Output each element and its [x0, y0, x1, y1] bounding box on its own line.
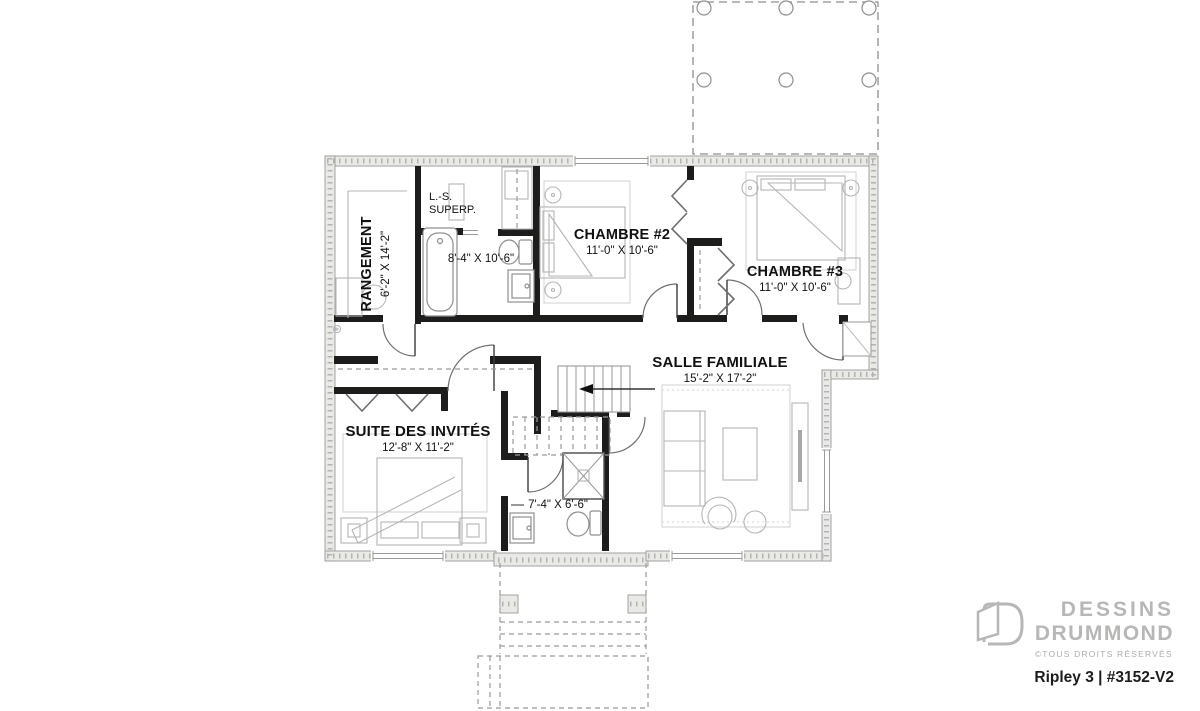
furniture-salle-familiale — [662, 385, 808, 533]
label-laundry-line1: L.-S. — [429, 191, 452, 203]
floorplan-canvas: CHAMBRE #2 11'-0" X 10'-6" CHAMBRE #3 11… — [0, 0, 1200, 711]
label-laundry-line2: SUPERP. — [429, 204, 476, 216]
bathroom2-fixtures — [510, 453, 604, 543]
label-chambre3-name: CHAMBRE #3 — [747, 264, 843, 280]
label-rangement-dims: 6'-2" X 14'-2" — [380, 231, 392, 297]
porch-steps — [478, 563, 648, 708]
label-chambre2-name: CHAMBRE #2 — [574, 227, 670, 243]
label-rangement-name: RANGEMENT — [359, 216, 375, 311]
logo-block: DESSINS DRUMMOND ©TOUS DROITS RÉSERVÉS R… — [974, 598, 1174, 687]
copyright-text: ©TOUS DROITS RÉSERVÉS — [1035, 649, 1174, 659]
label-chambre2-dims: 11'-0" X 10'-6" — [586, 245, 658, 257]
label-salle-familiale-name: SALLE FAMILIALE — [652, 354, 788, 371]
logo-door-icon — [974, 598, 1026, 650]
label-chambre3-dims: 11'-0" X 10'-6" — [759, 282, 831, 294]
brand-wordmark: DESSINS DRUMMOND ©TOUS DROITS RÉSERVÉS — [1035, 598, 1174, 659]
label-bath2-dims: 7'-4" X 6'-6" — [528, 499, 588, 511]
foundation-walls — [325, 156, 878, 566]
label-suite-invites-name: SUITE DES INVITÉS — [345, 423, 490, 440]
label-bath1-dims: 8'-4" X 10'-6" — [448, 253, 514, 265]
label-suite-invites-dims: 12'-8" X 11'-2" — [382, 442, 454, 454]
deck-outline — [693, 1, 878, 154]
brand-line2: DRUMMOND — [1035, 622, 1174, 646]
plan-name: Ripley 3 | #3152-V2 — [974, 669, 1174, 687]
brand-line1: DESSINS — [1035, 598, 1174, 622]
label-salle-familiale-dims: 15'-2" X 17'-2" — [684, 373, 757, 385]
